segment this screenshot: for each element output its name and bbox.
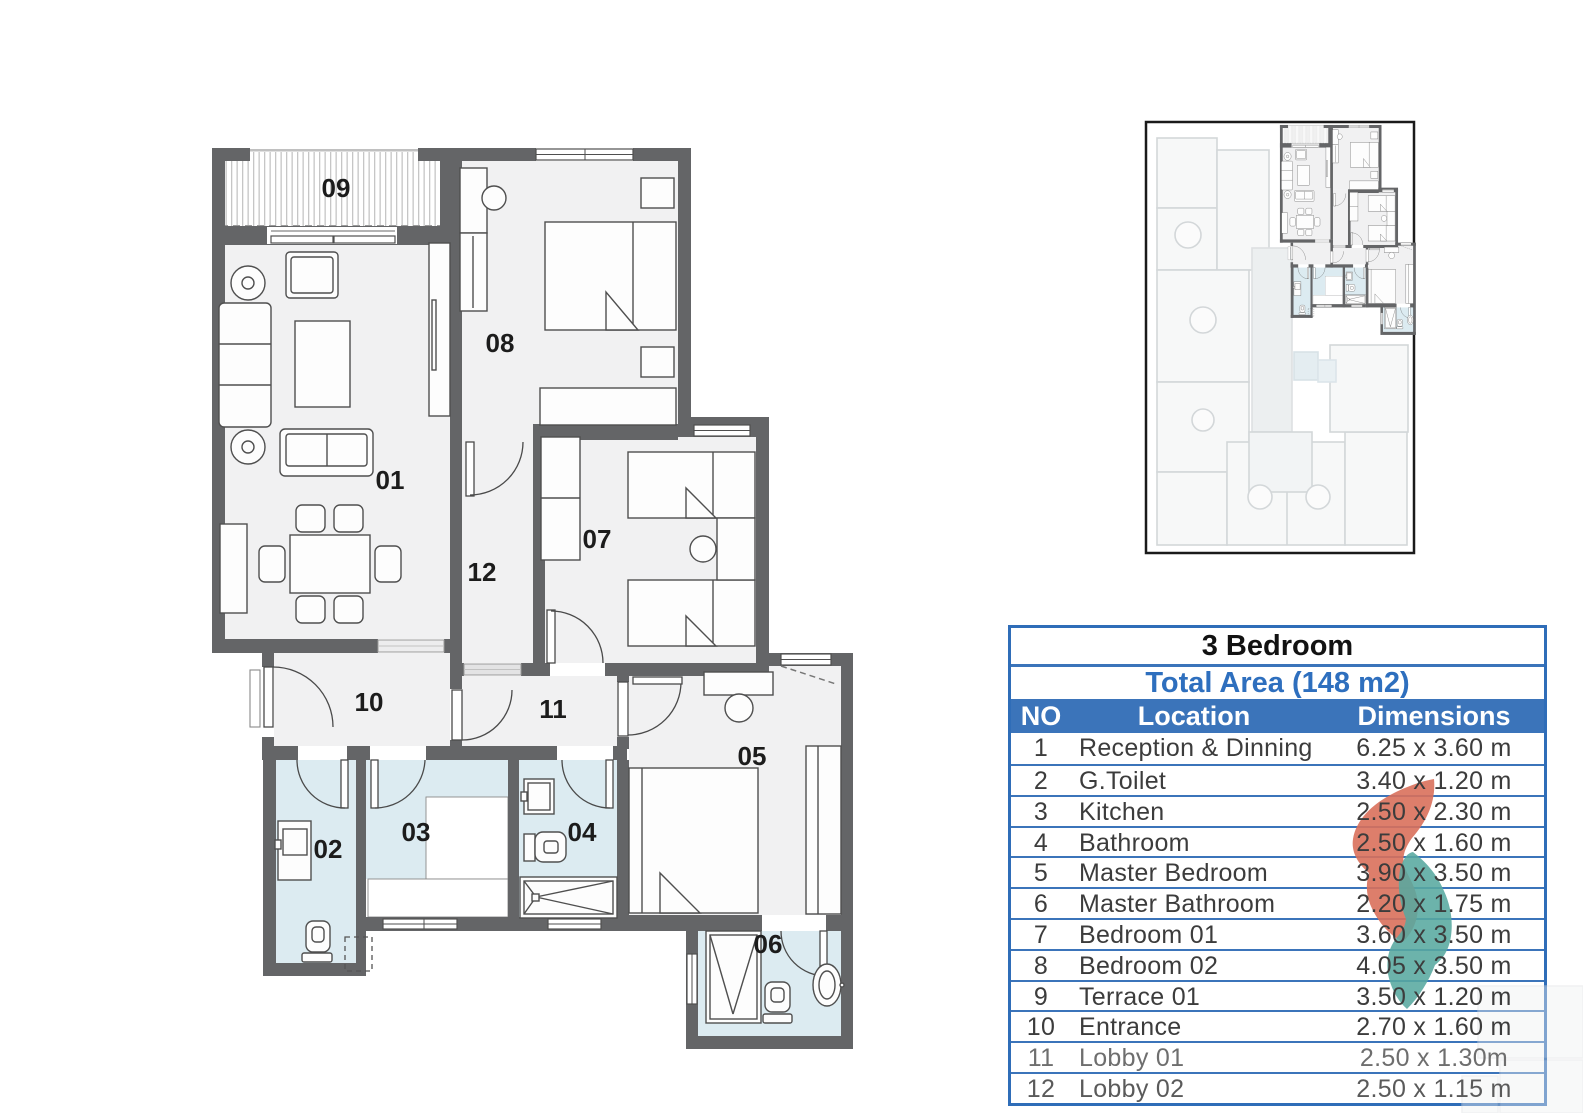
svg-text:01: 01	[376, 465, 405, 495]
svg-text:03: 03	[402, 817, 431, 847]
svg-text:08: 08	[486, 328, 515, 358]
svg-text:10: 10	[355, 687, 384, 717]
svg-text:02: 02	[314, 834, 343, 864]
svg-text:06: 06	[754, 929, 783, 959]
svg-text:11: 11	[539, 694, 567, 724]
svg-text:07: 07	[583, 524, 612, 554]
svg-text:04: 04	[568, 817, 597, 847]
svg-text:05: 05	[738, 741, 767, 771]
svg-text:09: 09	[322, 173, 351, 203]
svg-text:12: 12	[468, 557, 497, 587]
